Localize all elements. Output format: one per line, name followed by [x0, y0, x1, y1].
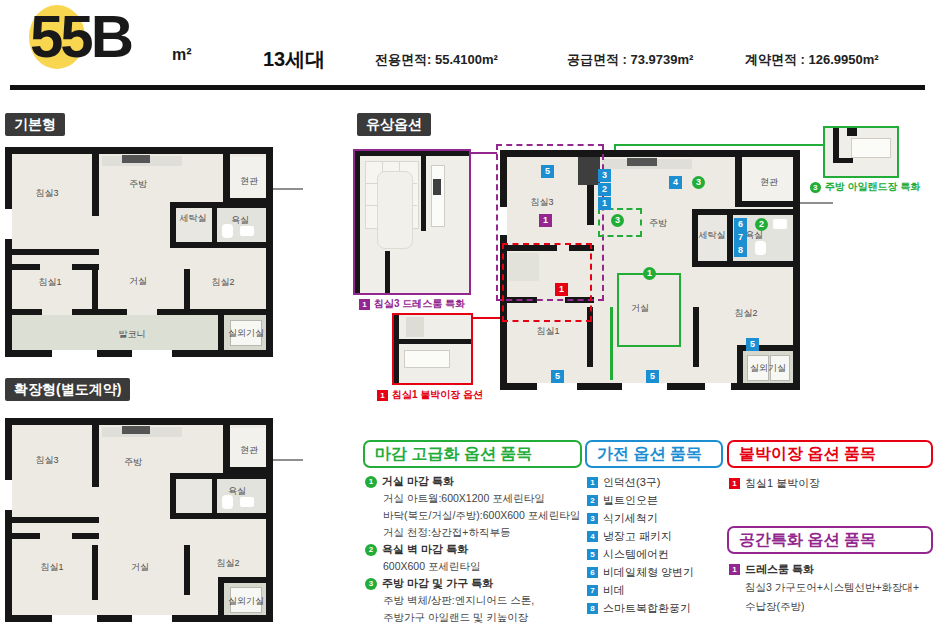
option-detail: 침실3 가구도어+시스템선반+화장대+ — [745, 578, 929, 597]
kitchen-range — [627, 158, 657, 166]
badge-induction: 1 — [598, 197, 611, 210]
number-badge: 1 — [729, 478, 740, 489]
option-item: 2 욕실 벽 마감 특화 — [365, 541, 585, 558]
room-label-balcony: 발코니 — [119, 328, 146, 341]
window — [705, 383, 731, 390]
window — [5, 480, 12, 510]
number-badge: 7 — [587, 585, 598, 596]
inset-island-plan — [823, 126, 899, 178]
badge-aircon-living: 5 — [646, 370, 659, 383]
header-divider — [10, 85, 925, 90]
badge-aircon-bed2: 5 — [746, 338, 759, 351]
inset-badge-island: 3 — [810, 182, 821, 193]
option-item: 1 드레스룸 특화 — [729, 561, 929, 578]
room-label-outdoor-unit: 실외기실 — [228, 327, 264, 340]
room-label-kitchen: 주방 — [649, 217, 667, 230]
room-label-entrance: 현관 — [760, 176, 778, 189]
kitchen-range — [122, 155, 150, 163]
badge-bidet-toilet: 6 — [734, 218, 747, 231]
window — [537, 383, 577, 390]
section-label-paid-options: 유상옵션 — [357, 113, 431, 136]
option-detail: 거실 아트월:600X1200 포세린타일 — [383, 490, 585, 507]
households-count: 13세대 — [263, 46, 325, 73]
inset-closet-plan — [392, 313, 473, 385]
brochure-page: 55B m² 13세대 전용면적: 55.4100m² 공급면적 : 73.97… — [0, 0, 935, 640]
number-badge: 4 — [587, 531, 598, 542]
badge-space-dressroom: 1 — [539, 214, 552, 227]
window — [52, 350, 97, 357]
island-counter — [851, 138, 891, 158]
window — [52, 615, 97, 622]
mirror — [433, 179, 441, 195]
window — [622, 383, 667, 390]
wardrobe — [431, 165, 445, 227]
badge-fridge-package: 4 — [669, 176, 682, 189]
connector-line-island-h — [614, 144, 823, 146]
option-list-title-finish: 마감 고급화 옵션 품목 — [363, 440, 582, 468]
floorplan-paid-options: 침실3 주방 세탁실 욕실 현관 거실 침실1 침실2 실외기실 5 1 3 2… — [500, 150, 800, 390]
option-detail: 수납장(주방) — [745, 597, 929, 616]
section-label-basic: 기본형 — [5, 113, 65, 136]
badge-living-finish: 1 — [643, 267, 656, 280]
option-item: 7비데 — [587, 581, 722, 599]
option-list-title-builtin-closet: 붙박이장 옵션 품목 — [727, 440, 933, 468]
room-label-bed2: 침실2 — [211, 276, 234, 289]
option-item: 6비데일체형 양변기 — [587, 563, 722, 581]
number-badge: 1 — [365, 476, 377, 488]
inset-badge-dressroom: 1 — [359, 299, 370, 310]
supply-area: 공급면적 : 73.9739m² — [567, 51, 693, 69]
room-label-bed3: 침실3 — [530, 196, 553, 209]
toilet-fixture — [755, 241, 766, 255]
option-item: 4냉장고 패키지 — [587, 527, 722, 545]
balcony-floor — [12, 315, 218, 350]
room-label-bed3: 침실3 — [35, 454, 58, 467]
floorplan-extended: 침실3 주방 현관 욕실 침실1 거실 침실2 실외기실 — [5, 418, 273, 622]
badge-oven: 2 — [598, 183, 611, 196]
option-item: 5시스템에어컨 — [587, 545, 722, 563]
room-label-kitchen: 주방 — [129, 178, 147, 191]
number-badge: 2 — [365, 544, 377, 556]
closet-top — [406, 317, 424, 337]
option-detail: 거실 천정:상간접+하직부등 — [383, 524, 585, 541]
badge-aircon-bed3: 5 — [541, 165, 554, 178]
inset-dressroom-plan — [353, 149, 471, 295]
room-label-bath: 욕실 — [228, 485, 246, 498]
number-badge: 1 — [729, 564, 740, 575]
room-label-living: 거실 — [131, 561, 149, 574]
option-detail: 주방 벽체/상판:엔지니어드 스톤, — [383, 592, 585, 609]
entry-indicator-line — [273, 459, 303, 461]
highlight-artwall-line — [610, 307, 613, 380]
room-label-bed1: 침실1 — [38, 276, 61, 289]
badge-bath-finish: 2 — [755, 218, 768, 231]
room-label-bed2: 침실2 — [734, 307, 757, 320]
option-list-title-appliance: 가전 옵션 품목 — [585, 440, 723, 468]
option-item: 8스마트복합환풍기 — [587, 599, 722, 617]
badge-kitchen-finish: 3 — [611, 214, 624, 227]
number-badge: 5 — [587, 549, 598, 560]
option-detail: 바닥(복도/거실/주방):600X600 포세린타일 — [383, 507, 585, 524]
room-label-entrance: 현관 — [240, 175, 258, 188]
inset-caption-island: 3 주방 아일랜드장 특화 — [810, 180, 920, 194]
option-list-builtin-closet: 1침실1 붙박이장 — [729, 474, 929, 492]
kitchen-range — [122, 426, 150, 434]
contract-area: 계약면적 : 126.9950m² — [745, 51, 879, 69]
room-label-laundry: 세탁실 — [699, 229, 726, 242]
room-label-outdoor-unit: 실외기실 — [750, 362, 786, 375]
exclusive-area: 전용면적: 55.4100m² — [375, 51, 498, 69]
option-item: 2빌트인오븐 — [587, 491, 722, 509]
number-badge: 3 — [365, 578, 377, 590]
room-label-bed1: 침실1 — [536, 325, 559, 338]
unit-area-unit: m² — [172, 46, 192, 64]
connector-line-closet — [471, 317, 502, 319]
badge-builtin-closet: 1 — [555, 283, 568, 296]
inset-caption-closet: 1 침실1 붙박이장 옵션 — [375, 388, 485, 402]
option-item: 1인덕션(3구) — [587, 473, 722, 491]
option-item: 3 주방 마감 및 가구 특화 — [365, 575, 585, 592]
option-item: 1침실1 붙박이장 — [729, 474, 929, 492]
option-list-appliance: 1인덕션(3구) 2빌트인오븐 3식기세척기 4냉장고 패키지 5시스템에어컨 … — [587, 473, 722, 617]
option-list-finish: 1 거실 마감 특화 거실 아트월:600X1200 포세린타일 바닥(복도/거… — [365, 473, 585, 626]
room-label-outdoor-unit: 실외기실 — [228, 595, 264, 608]
badge-bidet: 7 — [734, 231, 747, 244]
sink-fixture — [773, 219, 787, 229]
option-list-space: 1 드레스룸 특화 침실3 가구도어+시스템선반+화장대+ 수납장(주방) — [729, 561, 929, 616]
window — [132, 350, 172, 357]
option-detail: 600X600 포세린타일 — [383, 558, 585, 575]
highlight-closet-zone — [502, 243, 592, 322]
connector-line-dressroom — [469, 152, 497, 154]
badge-kitchen-finish-2: 3 — [692, 176, 705, 189]
room-label-bed3: 침실3 — [35, 187, 58, 200]
builtin-closet-box — [404, 350, 450, 368]
badge-smart-fan: 8 — [734, 244, 747, 257]
room-label-living: 거실 — [129, 275, 147, 288]
window — [5, 209, 12, 239]
option-list-title-space: 공간특화 옵션 품목 — [727, 526, 933, 554]
inset-badge-closet: 1 — [377, 390, 388, 401]
option-detail: 주방가구 아일랜드 및 키높이장 — [383, 609, 585, 626]
number-badge: 3 — [587, 513, 598, 524]
room-label-laundry: 세탁실 — [180, 212, 207, 225]
window — [132, 615, 172, 622]
room-label-entrance: 현관 — [240, 444, 258, 457]
floorplan-basic: 침실3 주방 현관 세탁실 욕실 침실1 거실 침실2 발코니 실외기실 — [5, 147, 273, 357]
room-label-living: 거실 — [631, 302, 649, 315]
number-badge: 1 — [587, 477, 598, 488]
badge-aircon-bed1: 5 — [551, 370, 564, 383]
room-label-bath: 욕실 — [231, 214, 249, 227]
option-item: 3식기세척기 — [587, 509, 722, 527]
section-label-extended: 확장형(별도계약) — [5, 378, 130, 401]
room-label-kitchen: 주방 — [124, 456, 142, 469]
sink-fixture — [240, 497, 254, 507]
unit-code: 55B — [30, 2, 131, 71]
badge-dishwasher: 3 — [598, 169, 611, 182]
dresser — [377, 171, 413, 249]
entry-indicator-line — [273, 188, 303, 190]
inset-caption-dressroom: 1 침실3 드레스룸 특화 — [353, 297, 471, 311]
number-badge: 8 — [587, 603, 598, 614]
option-item: 1 거실 마감 특화 — [365, 473, 585, 490]
sink-fixture — [240, 226, 254, 236]
room-label-bed2: 침실2 — [216, 557, 239, 570]
number-badge: 6 — [587, 567, 598, 578]
highlight-living-finish-zone — [617, 273, 681, 347]
entry-indicator-line — [800, 202, 833, 204]
number-badge: 2 — [587, 495, 598, 506]
room-label-bed1: 침실1 — [40, 561, 63, 574]
